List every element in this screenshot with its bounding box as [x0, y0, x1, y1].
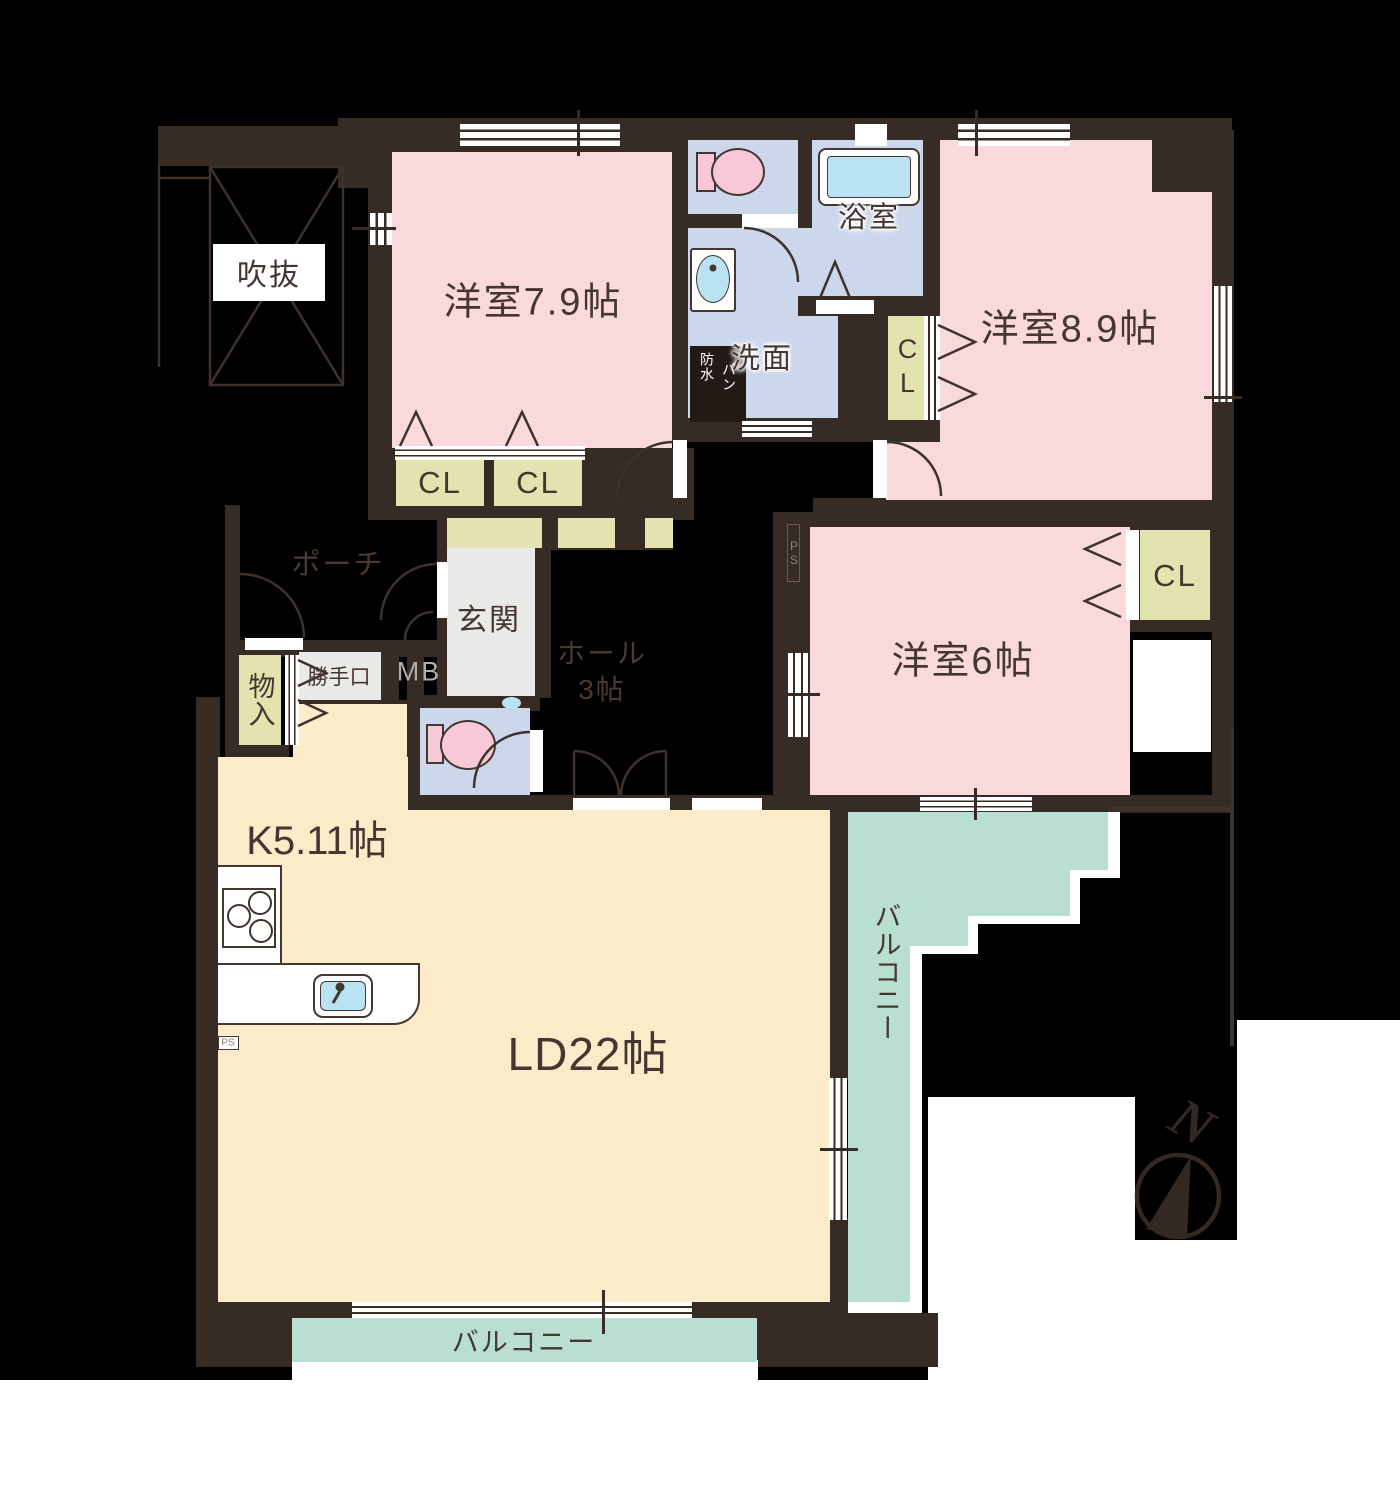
meter-box-label: MB	[397, 657, 442, 688]
storage-label: 物入	[241, 672, 280, 728]
stove	[222, 888, 276, 948]
porch-label: ポーチ	[291, 541, 384, 583]
hand-basin	[502, 697, 521, 709]
entrance-label: 玄関	[457, 595, 521, 639]
balcony-rim	[292, 1360, 758, 1382]
door-hall-ld	[573, 798, 670, 810]
toilet-bowl-icon	[440, 720, 496, 770]
door-toilet2	[530, 730, 543, 792]
wall	[828, 810, 848, 1080]
floor-plan: N 吹抜 洋室7.9帖 浴室 洗面 防水 パン CL CL CL 洋室8.9帖 …	[0, 0, 1400, 1491]
bedroom1-label: 洋室7.9帖	[444, 271, 623, 326]
wall-bedroom2-notch	[1152, 138, 1214, 192]
wall	[408, 795, 550, 811]
door-storage	[285, 655, 299, 745]
toilet-bowl-icon	[711, 148, 765, 196]
porch-threshold	[245, 638, 303, 650]
window-bath-top	[855, 124, 887, 146]
wall	[196, 697, 220, 1317]
compass-backdrop	[1135, 1097, 1237, 1240]
wall	[1212, 520, 1234, 812]
closet-label: CL	[892, 334, 923, 402]
balcony-right-label: バルコニー	[867, 902, 906, 1042]
page-bg-bottom	[0, 1380, 1400, 1491]
window-tick	[352, 227, 396, 230]
window-tick	[975, 110, 978, 156]
bathtub-water	[827, 156, 911, 198]
door-toilet1	[742, 214, 798, 228]
waterproof-pan-label: 防水 パン	[692, 352, 744, 418]
door-washroom	[742, 421, 812, 437]
room-bedroom2-entry	[886, 442, 942, 500]
balcony-bottom-label: バルコニー	[452, 1321, 596, 1360]
wall	[196, 1317, 292, 1367]
window-tick	[776, 693, 820, 696]
window-bedroom2-right	[1214, 286, 1232, 402]
door-closet-bedroom3	[1126, 530, 1139, 620]
shoe-cabinet-c	[645, 518, 673, 548]
kitchen-sink-bowl	[320, 981, 366, 1011]
closet-label: CL	[418, 465, 462, 501]
wall	[368, 118, 394, 448]
shoe-cabinet-a	[447, 518, 542, 548]
window-tick	[602, 1290, 605, 1334]
shoe-cabinet-b	[558, 518, 615, 548]
page-bg-right	[1237, 1020, 1400, 1097]
window-tick	[820, 1148, 858, 1151]
kitchen-label: K5.11帖	[246, 808, 388, 866]
void-label: 吹抜	[237, 250, 301, 294]
window-bedroom1-top	[460, 124, 620, 146]
wall	[225, 640, 239, 758]
alcove-bedroom3	[1133, 640, 1211, 752]
window-tick	[577, 110, 580, 156]
window-ld-bottom	[352, 1302, 692, 1318]
living-dining-label: LD22帖	[508, 1018, 669, 1084]
window-tick	[1204, 396, 1242, 399]
wall	[225, 505, 240, 657]
closet-label: CL	[516, 465, 560, 501]
wall	[158, 126, 340, 166]
hall-label-line1: ホール	[557, 632, 647, 672]
door-closet-bedroom1	[395, 446, 585, 460]
wall	[848, 1313, 938, 1367]
wall	[535, 548, 551, 698]
door-corridor-ld	[692, 798, 762, 810]
door-bathroom	[816, 300, 874, 314]
back-door-label: 勝手口	[308, 661, 371, 691]
door-bedroom2	[873, 440, 887, 498]
closet-label: CL	[1153, 558, 1197, 594]
door-entrance	[437, 562, 448, 618]
bathroom-label: 浴室	[838, 194, 900, 236]
room-kitchen-top	[293, 704, 407, 757]
bedroom3-label: 洋室6帖	[891, 630, 1034, 685]
wall	[828, 1218, 848, 1302]
door-closet-washroom	[924, 316, 940, 420]
pipe-space-label: PS	[787, 539, 801, 567]
window-tick	[974, 788, 977, 820]
door-bedroom1	[673, 440, 687, 498]
hall-label-line2: 3帖	[578, 668, 626, 708]
pipe-space-label: PS	[221, 1038, 234, 1049]
balcony-right	[848, 812, 1108, 870]
wash-basin-bowl	[696, 255, 730, 303]
bedroom2-label: 洋室8.9帖	[981, 298, 1160, 353]
